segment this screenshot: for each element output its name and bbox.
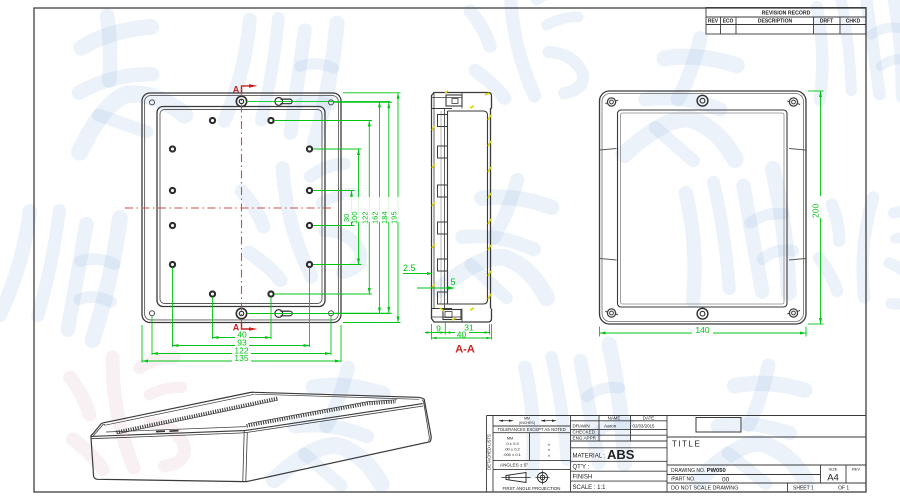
svg-text:ANGLES ± 5°: ANGLES ± 5° [500,463,528,468]
svg-text:02/03/2015: 02/03/2015 [633,423,656,428]
svg-text:SHEET 1: SHEET 1 [793,486,814,492]
svg-text:DESCRIPTION: DESCRIPTION [758,19,793,25]
svg-text:184: 184 [380,211,389,224]
svg-text:00: 00 [722,477,730,484]
svg-text:195: 195 [390,211,399,224]
svg-text:QT'Y :: QT'Y : [573,465,590,471]
svg-text:ECO: ECO [723,19,734,25]
svg-text:DRFT: DRFT [820,19,833,25]
svg-text:122: 122 [361,211,370,224]
svg-text:CHECKED: CHECKED [573,430,596,435]
svg-text:TITLE: TITLE [672,440,701,449]
svg-text:.00 ± 0.2: .00 ± 0.2 [504,447,520,452]
svg-text:Aaron: Aaron [604,423,617,428]
svg-text:CHKD: CHKD [846,19,861,25]
svg-text:DETACHED LISTS: DETACHED LISTS [487,434,492,470]
svg-text:2.5: 2.5 [403,263,416,273]
svg-text:OF 1: OF 1 [838,486,849,492]
svg-text:.000 ± 0.1: .000 ± 0.1 [503,452,522,457]
svg-text:DO NOT SCALE DRAWING: DO NOT SCALE DRAWING [671,486,738,492]
svg-text:REVISION RECORD: REVISION RECORD [762,10,811,16]
svg-text:5: 5 [451,277,456,287]
svg-text:A4: A4 [827,473,839,484]
svg-text:MM: MM [524,417,530,421]
svg-text:A-A: A-A [455,344,475,356]
svg-text:A: A [233,85,240,95]
svg-text:100: 100 [350,211,359,224]
svg-text:ENG APPR: ENG APPR [573,436,597,441]
svg-text:135: 135 [234,353,248,363]
svg-text:40: 40 [457,330,467,340]
svg-text:140: 140 [695,325,709,335]
svg-text:DRAWING NO. PW050: DRAWING NO. PW050 [671,468,726,474]
svg-text:TOLERANCES EXCEPT AS NOTED: TOLERANCES EXCEPT AS NOTED [497,427,566,432]
svg-text:SIZE: SIZE [829,466,838,471]
svg-text:MATERIAL :: MATERIAL : [573,454,606,460]
svg-text:DRAWN: DRAWN [573,423,590,428]
svg-text:/PART NO.: /PART NO. [671,477,695,483]
svg-text:200: 200 [811,204,821,218]
svg-text:FINISH: FINISH [573,475,593,481]
svg-text:REV: REV [708,19,719,25]
svg-text:(INCHES): (INCHES) [519,421,535,425]
svg-text:REV: REV [852,466,861,471]
svg-text:SCALE : 1:1: SCALE : 1:1 [573,485,607,491]
svg-text:DATE: DATE [643,416,654,421]
svg-text:NAME: NAME [608,416,621,421]
svg-text:MM: MM [507,437,513,441]
svg-text:.0 ± 0.3: .0 ± 0.3 [505,441,519,446]
svg-text:162: 162 [371,211,380,224]
svg-text:ABS: ABS [607,447,635,462]
svg-text:FIRST ANGLE PROJECTION: FIRST ANGLE PROJECTION [503,486,561,491]
svg-text:9: 9 [436,324,441,334]
